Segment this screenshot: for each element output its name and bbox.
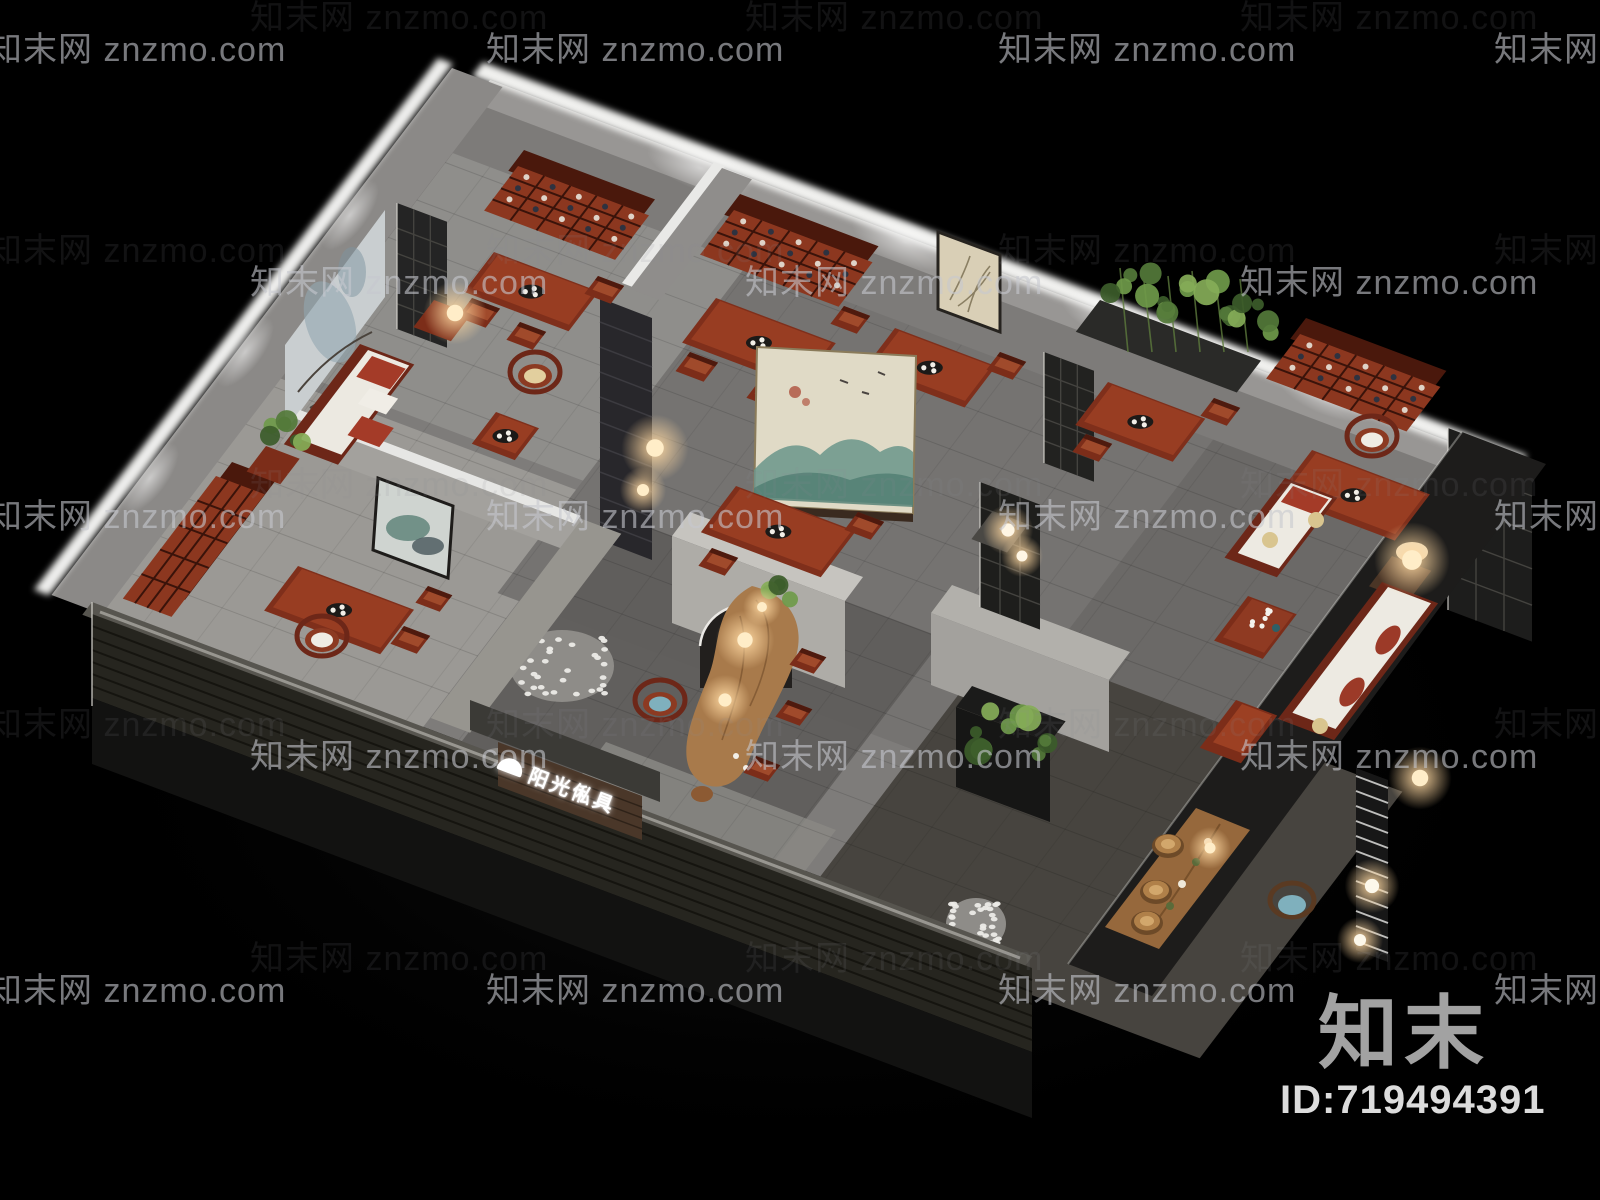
asset-id-text: ID:719494391 xyxy=(1280,1078,1546,1123)
stump-stool xyxy=(1140,880,1172,904)
render-stage: 知末网 znzmo.com知末网 znzmo.com知末网 znzmo.com知… xyxy=(0,0,1600,1200)
screen-painting xyxy=(754,347,916,522)
screenshot-root: { "scene": { "label": "chinese-teahouse-… xyxy=(0,0,1600,1200)
site-brand: 知末 ID:719494391 xyxy=(1318,992,1546,1123)
stump-stool xyxy=(1131,911,1163,935)
site-logo-text: 知末 xyxy=(1318,992,1546,1076)
storefront-logo-icon xyxy=(496,755,526,778)
stump-stool xyxy=(1152,834,1184,858)
